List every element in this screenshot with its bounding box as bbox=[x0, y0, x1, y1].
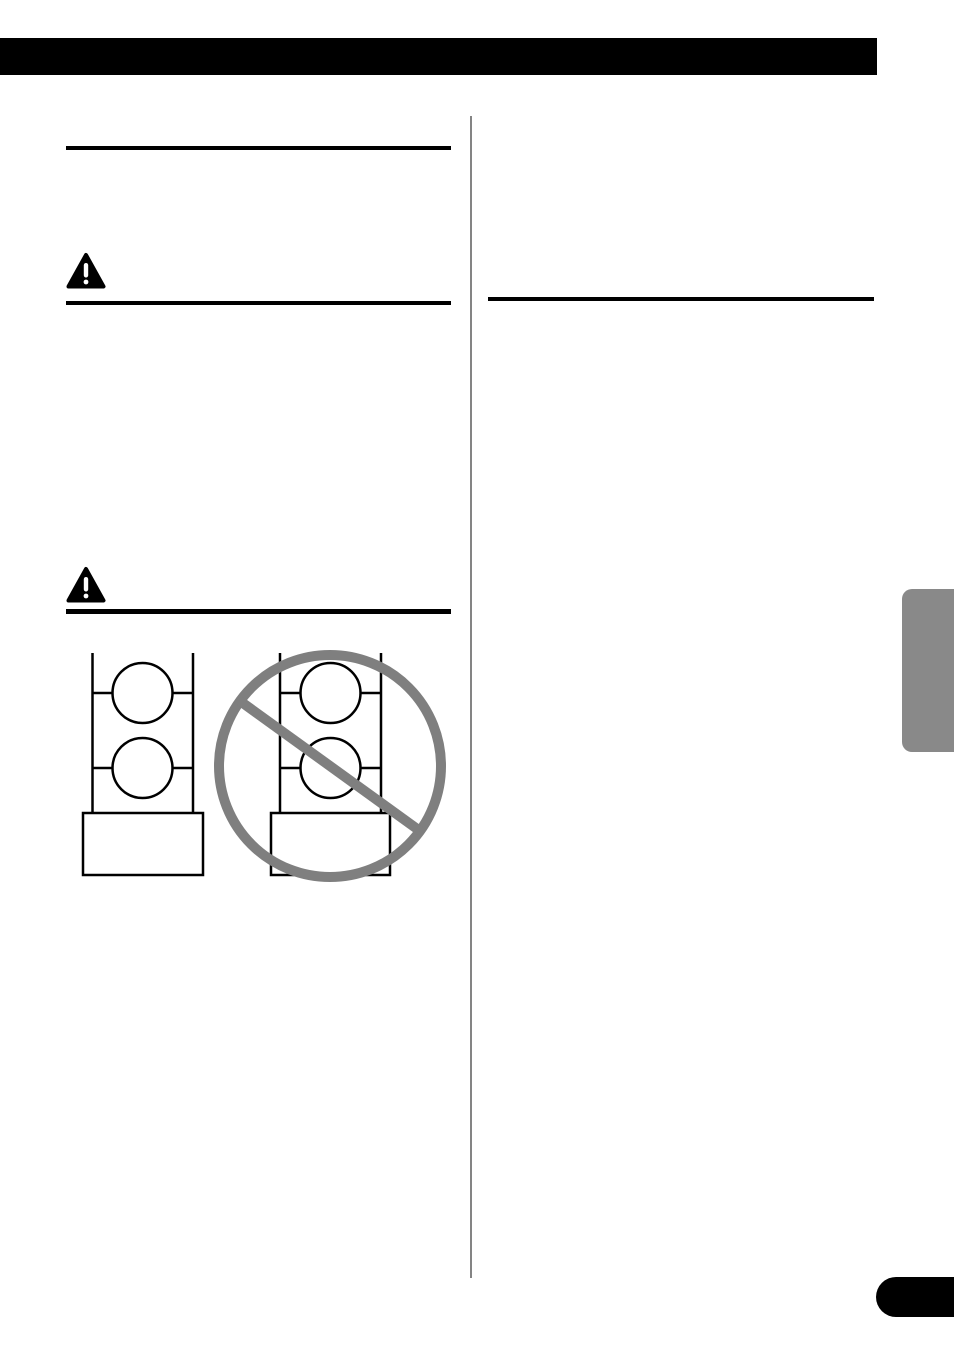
exclamation-dot bbox=[84, 594, 89, 599]
section-rule-warning-2 bbox=[66, 609, 451, 614]
section-rule-top-left bbox=[66, 146, 451, 150]
speaker-driver-upper bbox=[301, 663, 361, 723]
stand-base bbox=[83, 813, 203, 875]
page-number-tab bbox=[876, 1277, 954, 1317]
manual-page bbox=[0, 0, 954, 1355]
section-rule-right bbox=[488, 297, 874, 301]
exclamation-dot bbox=[84, 280, 89, 285]
exclamation-bar bbox=[84, 263, 88, 278]
warning-triangle-icon bbox=[66, 566, 106, 604]
speaker-driver-upper bbox=[113, 663, 173, 723]
header-bar bbox=[0, 38, 877, 75]
column-divider bbox=[470, 116, 472, 1278]
warning-triangle-icon bbox=[66, 252, 106, 290]
section-rule-warning-1 bbox=[66, 301, 451, 305]
speaker-stand-figure-allowed bbox=[83, 653, 203, 875]
exclamation-bar bbox=[84, 577, 88, 592]
speaker-driver-lower bbox=[113, 738, 173, 798]
warning-triangle-glyph bbox=[66, 252, 106, 290]
warning-triangle-glyph bbox=[66, 566, 106, 604]
speaker-stacking-diagram bbox=[70, 645, 450, 885]
chapter-tab bbox=[902, 589, 954, 752]
